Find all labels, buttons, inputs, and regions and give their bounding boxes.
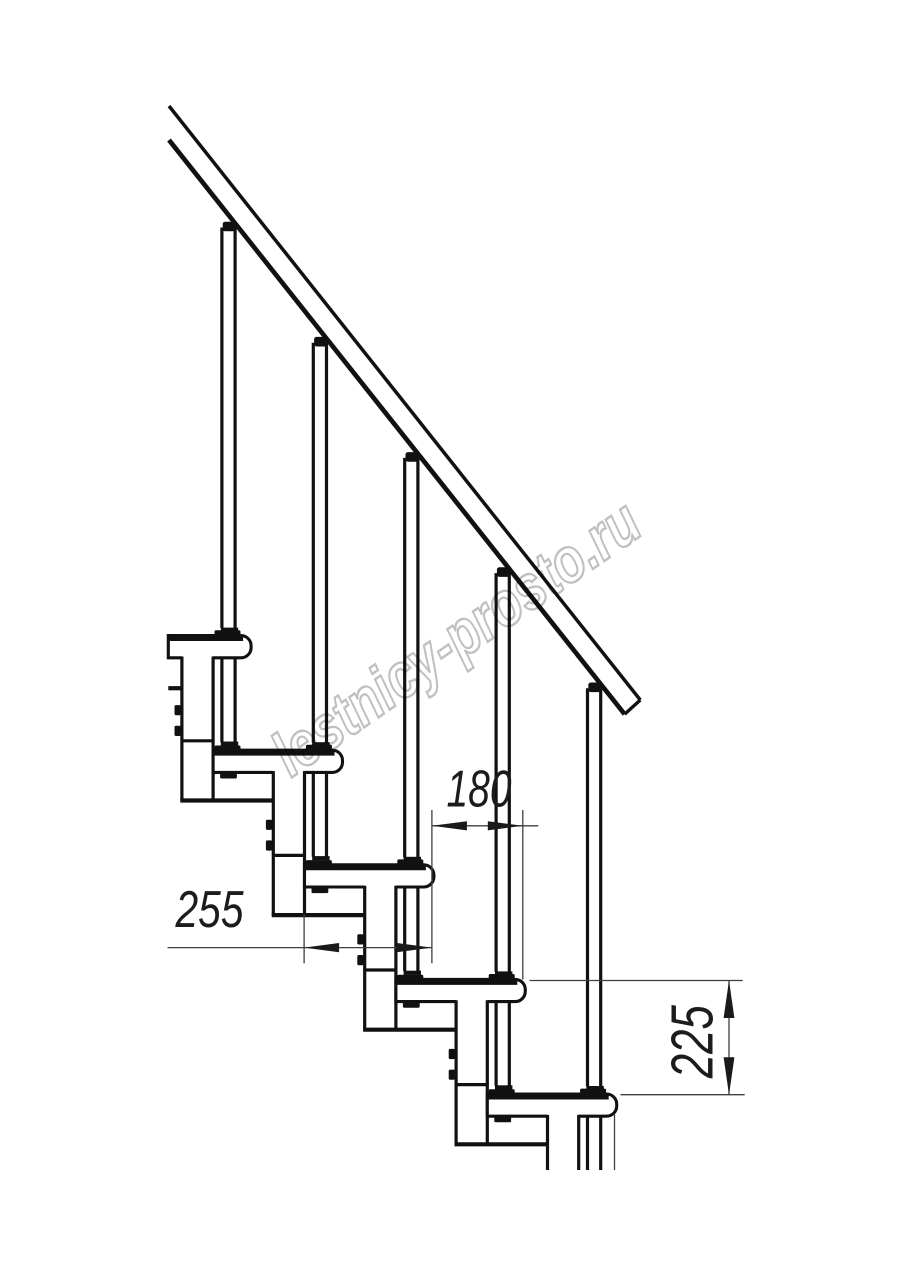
svg-text:180: 180 [447, 761, 512, 819]
svg-text:255: 255 [175, 881, 245, 939]
svg-text:225: 225 [660, 1005, 726, 1079]
